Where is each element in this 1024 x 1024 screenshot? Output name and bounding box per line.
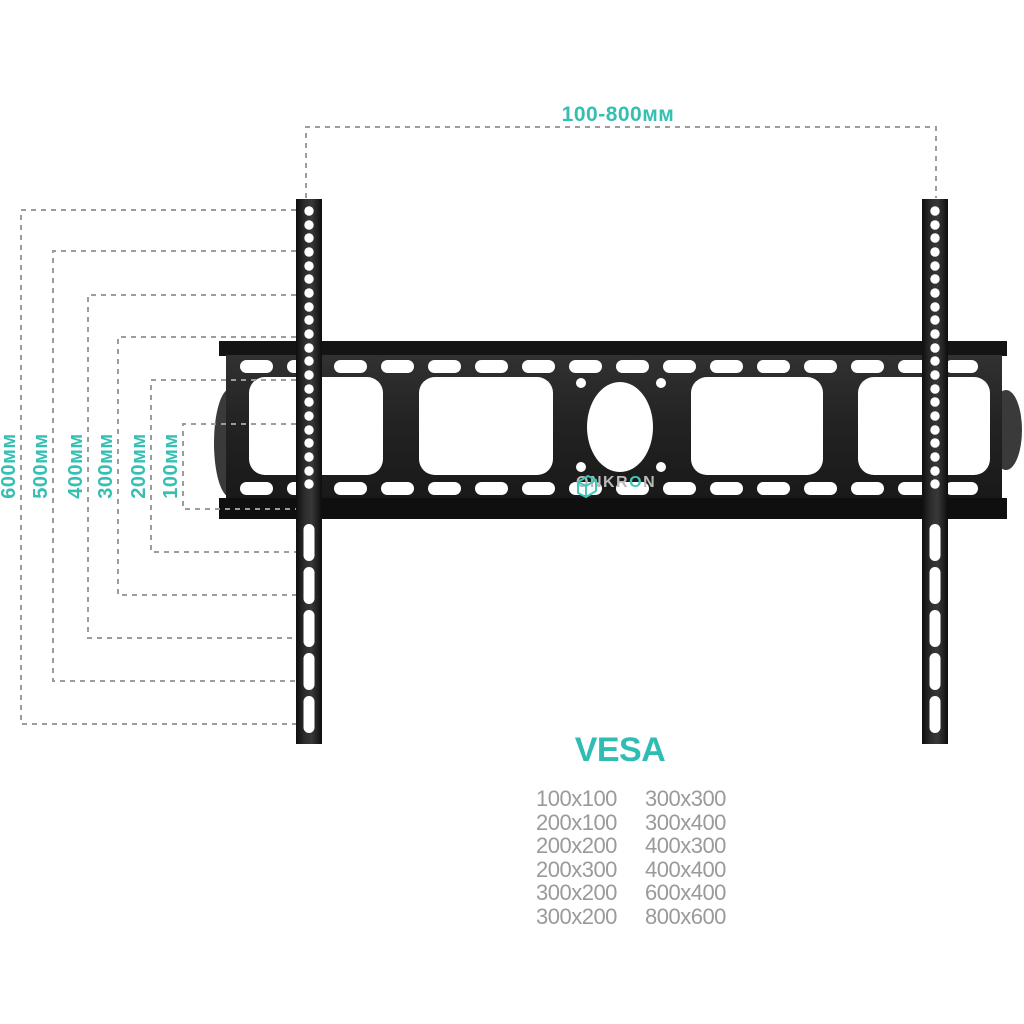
side-dimension-100: 100мм (161, 406, 181, 526)
brand-logo: ONKRON (576, 474, 656, 492)
vesa-size-table: 100x100 300x300 200x100 300x400 200x200 … (536, 787, 726, 928)
vesa-size-cell: 400x400 (645, 858, 726, 882)
plate-bottom-bar (219, 498, 1007, 519)
brand-cube-icon (576, 474, 598, 498)
vesa-title: VESA (520, 731, 720, 770)
product-diagram: 100-800мм 600мм 500мм 400мм 300мм 200мм … (0, 0, 1024, 1024)
side-dimension-300: 300мм (96, 406, 116, 526)
top-dimension-label: 100-800мм (468, 103, 768, 127)
vesa-size-cell: 100x100 (536, 787, 645, 811)
vesa-size-cell: 600x400 (645, 881, 726, 905)
wall-plate (214, 341, 1022, 519)
left-mount-rail (296, 199, 322, 744)
side-dimension-500: 500мм (31, 406, 51, 526)
vesa-size-cell: 300x300 (645, 787, 726, 811)
vesa-size-cell: 200x300 (536, 858, 645, 882)
vesa-size-cell: 300x200 (536, 905, 645, 929)
plate-top-bar (219, 341, 1007, 356)
dim-bracket-width (306, 127, 936, 198)
mount-diagram-graphic (0, 0, 1024, 1024)
side-dimension-400: 400мм (66, 406, 86, 526)
side-dimension-200: 200мм (129, 406, 149, 526)
right-mount-rail (922, 199, 948, 744)
vesa-size-cell: 800x600 (645, 905, 726, 929)
vesa-size-cell: 200x100 (536, 811, 645, 835)
vesa-size-cell: 400x300 (645, 834, 726, 858)
vesa-size-cell: 200x200 (536, 834, 645, 858)
side-dimension-600: 600мм (0, 406, 19, 526)
cable-oval-cutout (587, 382, 653, 472)
vesa-size-cell: 300x400 (645, 811, 726, 835)
vesa-size-cell: 300x200 (536, 881, 645, 905)
